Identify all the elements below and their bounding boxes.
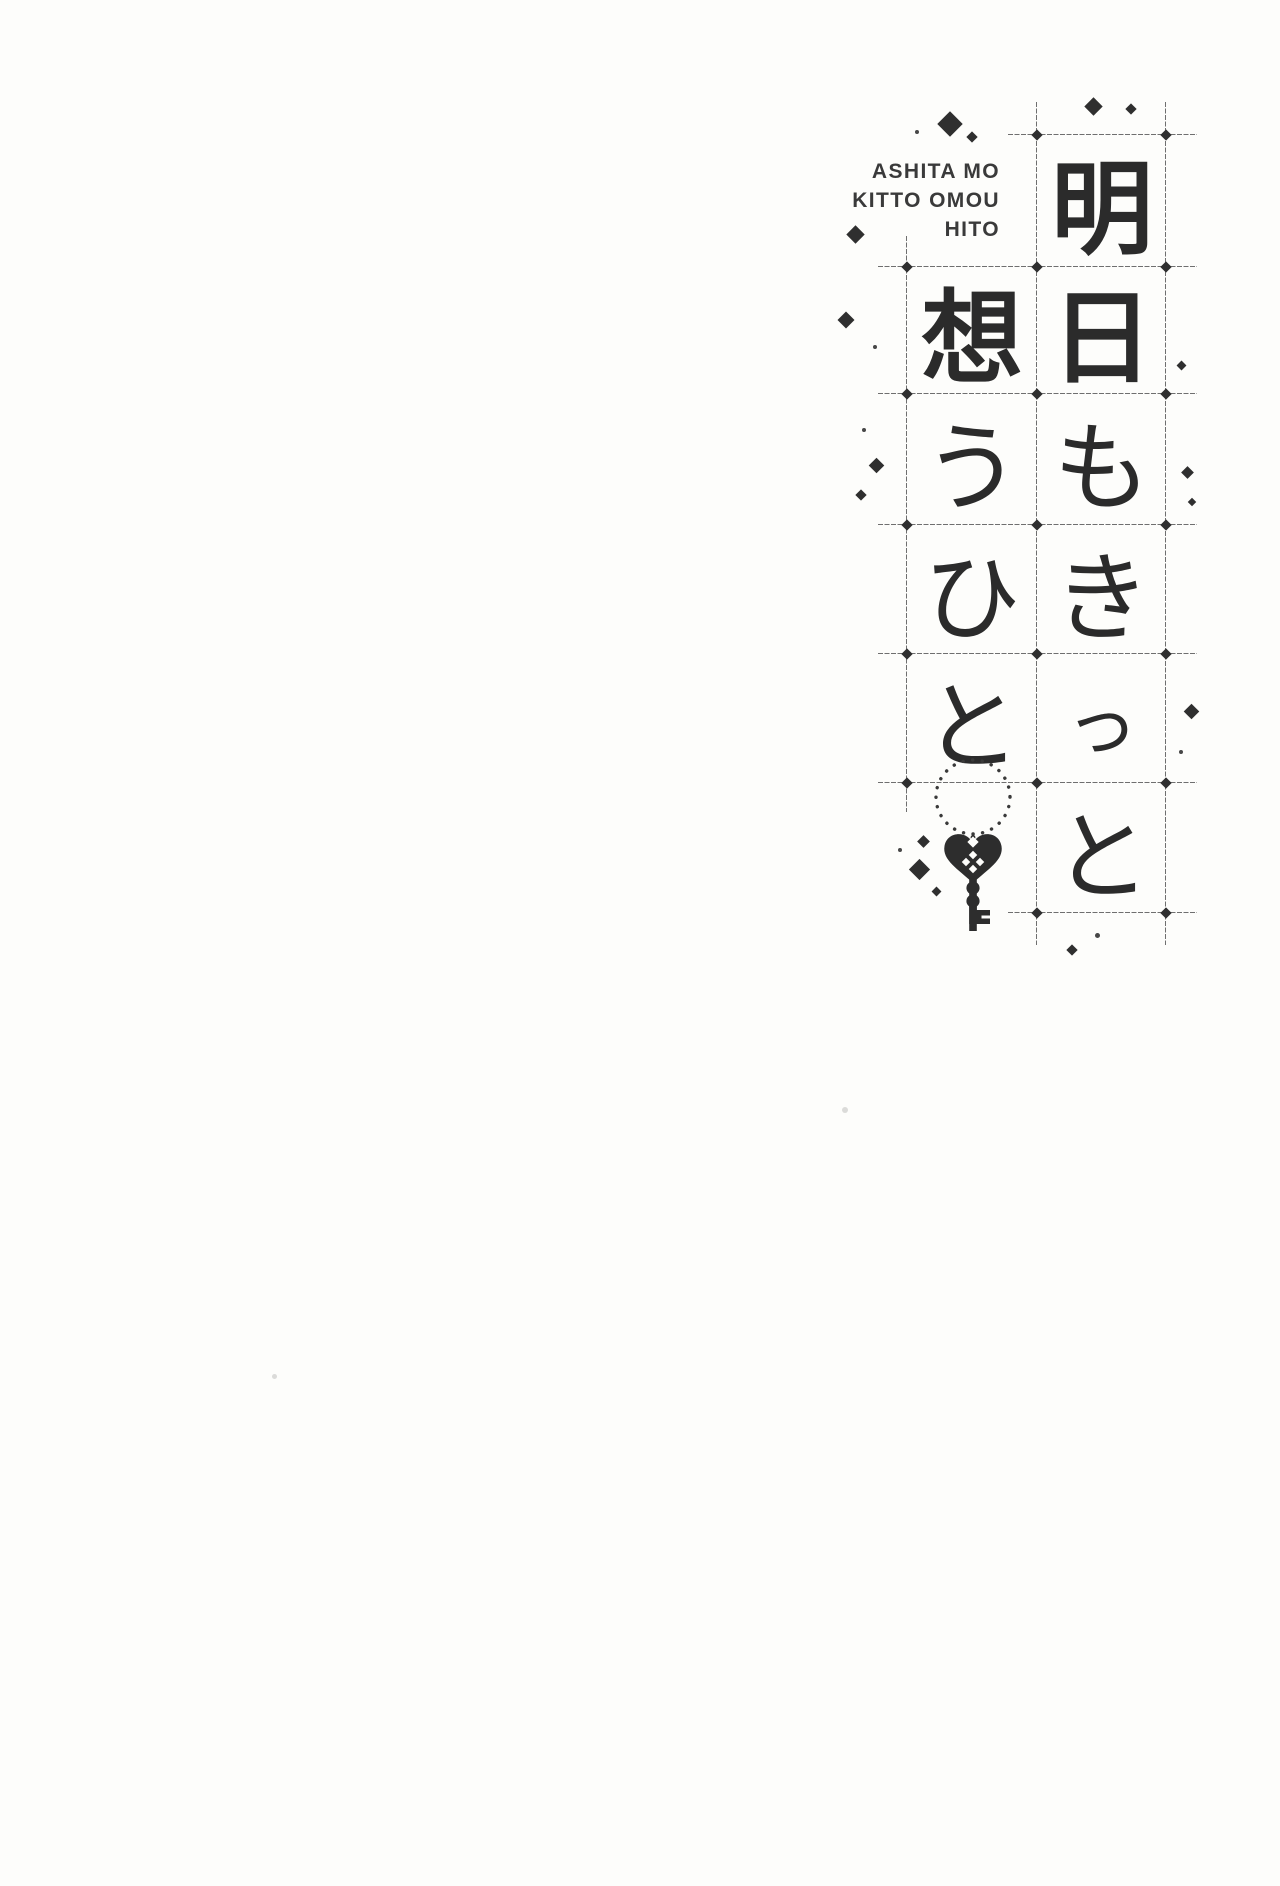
- romaji-title: ASHITA MO KITTO OMOU HITO: [690, 157, 1000, 244]
- heart-key-icon: [913, 745, 1033, 945]
- diamond-sparkle: [1181, 466, 1194, 479]
- dot-sparkle: [1179, 750, 1183, 754]
- title-char: 日: [1051, 257, 1153, 404]
- diamond-sparkle: [1177, 361, 1187, 371]
- diamond-sparkle: [838, 312, 855, 329]
- diamond-sparkle: [1125, 103, 1136, 114]
- paper-speck: [272, 1374, 277, 1379]
- romaji-title-line: HITO: [690, 215, 1000, 244]
- diamond-sparkle: [937, 111, 962, 136]
- title-char: ひ: [924, 519, 1021, 660]
- title-char-cell: う: [907, 394, 1037, 525]
- book-title-page: ASHITA MO KITTO OMOU HITO 明 日 も き っ と: [0, 0, 1280, 1886]
- title-char-cell: 日: [1037, 267, 1167, 394]
- title-char: う: [924, 389, 1021, 530]
- diamond-sparkle: [966, 131, 977, 142]
- dot-sparkle: [862, 428, 866, 432]
- title-char-cell: き: [1037, 525, 1167, 654]
- title-char: き: [1054, 519, 1151, 660]
- title-char-cell: ひ: [907, 525, 1037, 654]
- diamond-sparkle: [869, 458, 885, 474]
- dot-sparkle: [873, 345, 877, 349]
- title-char-cell: っ: [1037, 654, 1167, 783]
- diamond-sparkle: [855, 489, 866, 500]
- title-char: 明: [1051, 128, 1153, 275]
- title-char: も: [1054, 389, 1151, 530]
- diamond-sparkle: [1066, 944, 1077, 955]
- title-char-cell: 明: [1037, 135, 1167, 267]
- title-char-cell: と: [1037, 783, 1167, 913]
- title-char-cell: 想: [907, 267, 1037, 394]
- dot-sparkle: [915, 130, 919, 134]
- diamond-sparkle: [1084, 97, 1102, 115]
- title-char: っ: [1066, 666, 1138, 771]
- title-char-cell: も: [1037, 394, 1167, 525]
- title-char: 想: [921, 257, 1023, 404]
- title-char: と: [1054, 778, 1151, 919]
- diamond-sparkle: [1188, 498, 1196, 506]
- romaji-title-line: ASHITA MO: [690, 157, 1000, 186]
- paper-speck: [842, 1107, 848, 1113]
- dotted-circle-ornament: [936, 760, 1010, 834]
- dot-sparkle: [898, 848, 902, 852]
- diamond-sparkle: [1184, 704, 1200, 720]
- dot-sparkle: [1095, 933, 1100, 938]
- romaji-title-line: KITTO OMOU: [690, 186, 1000, 215]
